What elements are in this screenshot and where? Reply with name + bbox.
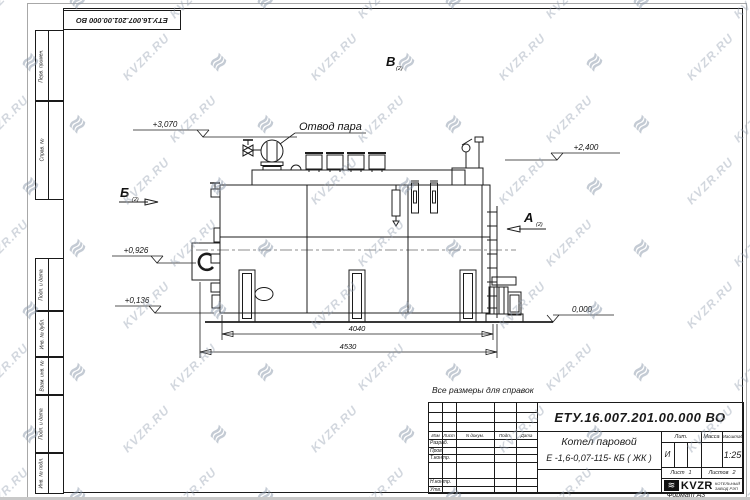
safety-valves [291, 153, 386, 172]
row-nkontr: Н.контр. [430, 478, 456, 486]
scale-header: Масштаб [722, 431, 743, 442]
title-block: ЕТУ.16.007.201.00.000 ВО Изм Лист N доку… [428, 402, 744, 494]
support-legs [239, 270, 476, 322]
elevation-2400-label: +2,400 [574, 143, 599, 152]
steam-outlet-leader [280, 133, 366, 144]
sheet-value: 1 [689, 470, 692, 476]
boiler-body [196, 185, 516, 313]
elevation-0136-label: +0,136 [125, 296, 150, 305]
steam-valve [243, 140, 283, 170]
view-v-label: В [386, 54, 395, 69]
margin-box-perv-primen: Перв. примен. [35, 30, 64, 102]
product-type: Е -1,6-0,07-115- КБ ( ЖК ) [537, 450, 661, 465]
dimension-body-length-label: 4040 [349, 324, 367, 333]
sheet-cell: Лист1 [661, 467, 701, 478]
row-utv: Утв. [430, 486, 456, 493]
right-top-fittings [462, 137, 483, 168]
margin-label: Инв. № подл. [39, 457, 45, 488]
margin-box-vzam-inv: Взам. инв. № [35, 356, 64, 396]
company-line2: ЗАВОД РЭП [715, 486, 740, 491]
sheets-label: Листов [708, 470, 728, 476]
drawing-sheet: KVZR.RU≋KVZR.RU≋KVZR.RU≋KVZR.RU≋KVZR.RU≋… [0, 0, 750, 500]
margin-label: Перв. примен. [39, 49, 45, 82]
reference-note: Все размеры для справок [432, 385, 534, 395]
fan-unit [486, 277, 523, 322]
margin-box-podp-data-2: Подп. и дата [35, 394, 64, 454]
sheets-cell: Листов2 [701, 467, 743, 478]
margin-box-sprav-no: Справ. № [35, 100, 64, 200]
lit-value: И [661, 442, 674, 467]
view-a-label: А [523, 210, 533, 225]
margin-label: Инв. № дубл. [39, 319, 45, 350]
row-razrab: Разраб. [430, 439, 456, 447]
scale-value: 1:25 [722, 442, 743, 467]
steam-outlet-label: Отвод пара [299, 121, 362, 133]
sheet-label: Лист [670, 470, 684, 476]
title-block-doc-number: ЕТУ.16.007.201.00.000 ВО [537, 403, 743, 431]
product-name: Котел паровой [537, 434, 661, 450]
kvzr-logo-icon: ≋ [664, 480, 679, 491]
water-level-gauges [392, 181, 438, 226]
margin-label: Взам. инв. № [39, 361, 45, 392]
margin-box-inv-dubl: Инв. № дубл. [35, 310, 64, 358]
manhole [255, 288, 273, 301]
view-b-sheet-ref: (2) [132, 197, 139, 203]
col-data: Дата [516, 431, 537, 439]
row-prov: Пров. [430, 447, 456, 454]
company-name: KVZR [681, 480, 713, 492]
margin-box-podp-data-1: Подп. и дата [35, 258, 64, 312]
margin-box-inv-podl: Инв. № подл. [35, 452, 64, 494]
steam-collector-platform [252, 168, 483, 185]
view-v-sheet-ref: (2) [396, 66, 403, 72]
margin-label: Подп. и дата [39, 408, 45, 439]
col-doc: N докум. [456, 431, 494, 439]
elevation-marks [112, 130, 620, 322]
view-a-sheet-ref: (2) [536, 222, 543, 228]
sheets-value: 2 [732, 470, 735, 476]
col-izm: Изм [429, 431, 442, 439]
mass-header: Масса [701, 431, 722, 442]
dimension-overall-length-label: 4530 [340, 342, 358, 351]
row-tkontr: Т.контр. [430, 454, 456, 462]
view-b-label: Б [120, 185, 129, 200]
elevation-0926-label: +0,926 [124, 246, 149, 255]
col-podp: Подп. [494, 431, 516, 439]
col-list: Лист [442, 431, 456, 439]
margin-label: Справ. № [39, 139, 45, 162]
elevation-0000-label: 0,000 [572, 305, 593, 314]
burner-unit [192, 183, 220, 308]
company-logo: ≋ KVZR КОТЕЛЬНЫЙ ЗАВОД РЭП [661, 478, 743, 493]
margin-label: Подп. и дата [39, 269, 45, 300]
lit-header: Лит. [661, 431, 701, 442]
corner-stamp-number: ЕТУ.16.007.201.00.000 ВО [76, 16, 168, 25]
corner-stamp: ЕТУ.16.007.201.00.000 ВО [63, 10, 181, 30]
elevation-3070-label: +3,070 [153, 120, 178, 129]
